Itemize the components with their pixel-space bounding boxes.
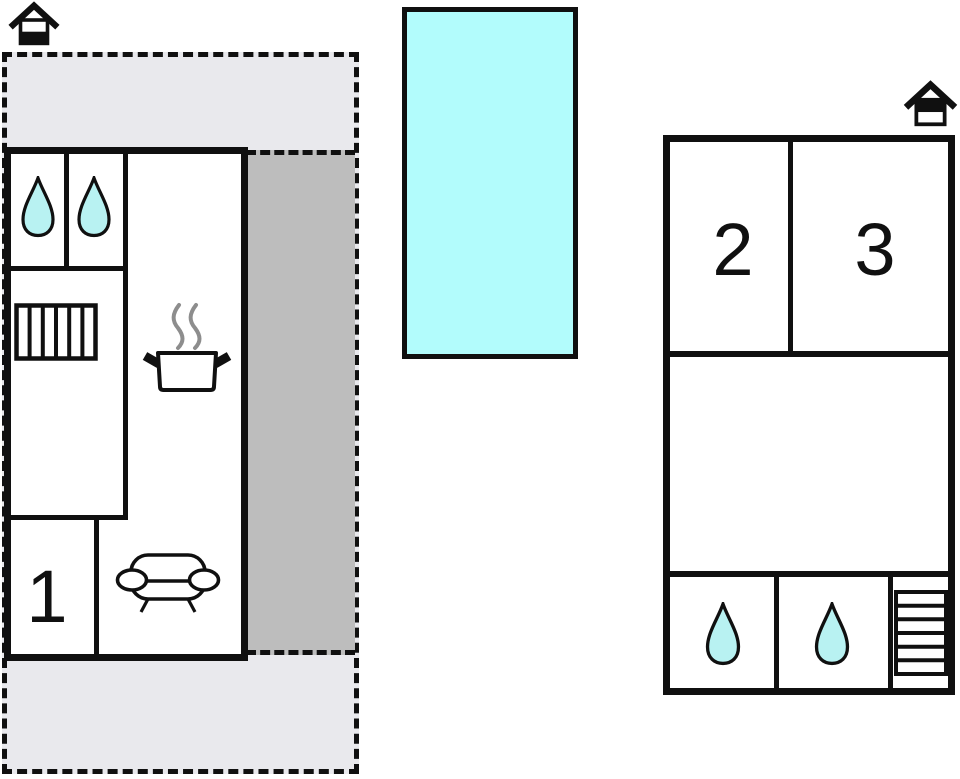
house-ground-floor-icon — [7, 1, 61, 48]
building-upper-floor: 2 3 — [663, 135, 955, 695]
stairs-vertical-icon — [14, 303, 98, 361]
wall-room1-right — [94, 515, 99, 654]
water-drop-icon — [704, 602, 742, 666]
room-label-2: 2 — [712, 213, 753, 287]
wall-bathroom-divider-1 — [774, 577, 779, 688]
sofa-icon — [115, 550, 221, 614]
wall-bedroom-divider — [788, 142, 793, 355]
room-label-3: 3 — [854, 213, 895, 287]
wall-room1-top — [11, 515, 128, 520]
wall-bathrooms-top — [670, 571, 948, 577]
house-upper-floor-icon — [902, 80, 959, 129]
floor-plan-canvas: 1 2 3 — [0, 0, 960, 779]
cooking-pot-icon — [142, 300, 232, 392]
wall-stairwell-left — [888, 577, 893, 688]
wall-kitchen-left — [123, 154, 128, 520]
water-drop-icon — [76, 176, 112, 238]
water-drop-icon — [20, 176, 56, 238]
wall-bathroom-divider — [64, 154, 69, 268]
room-label-1: 1 — [26, 560, 67, 634]
wall-bathroom-bottom — [11, 266, 128, 271]
wall-bedrooms-bottom — [670, 351, 948, 357]
water-drop-icon — [813, 602, 851, 666]
covered-terrace — [246, 150, 355, 655]
building-ground-floor: 1 — [4, 147, 248, 661]
swimming-pool — [402, 7, 578, 359]
stairs-horizontal-icon — [894, 590, 948, 676]
